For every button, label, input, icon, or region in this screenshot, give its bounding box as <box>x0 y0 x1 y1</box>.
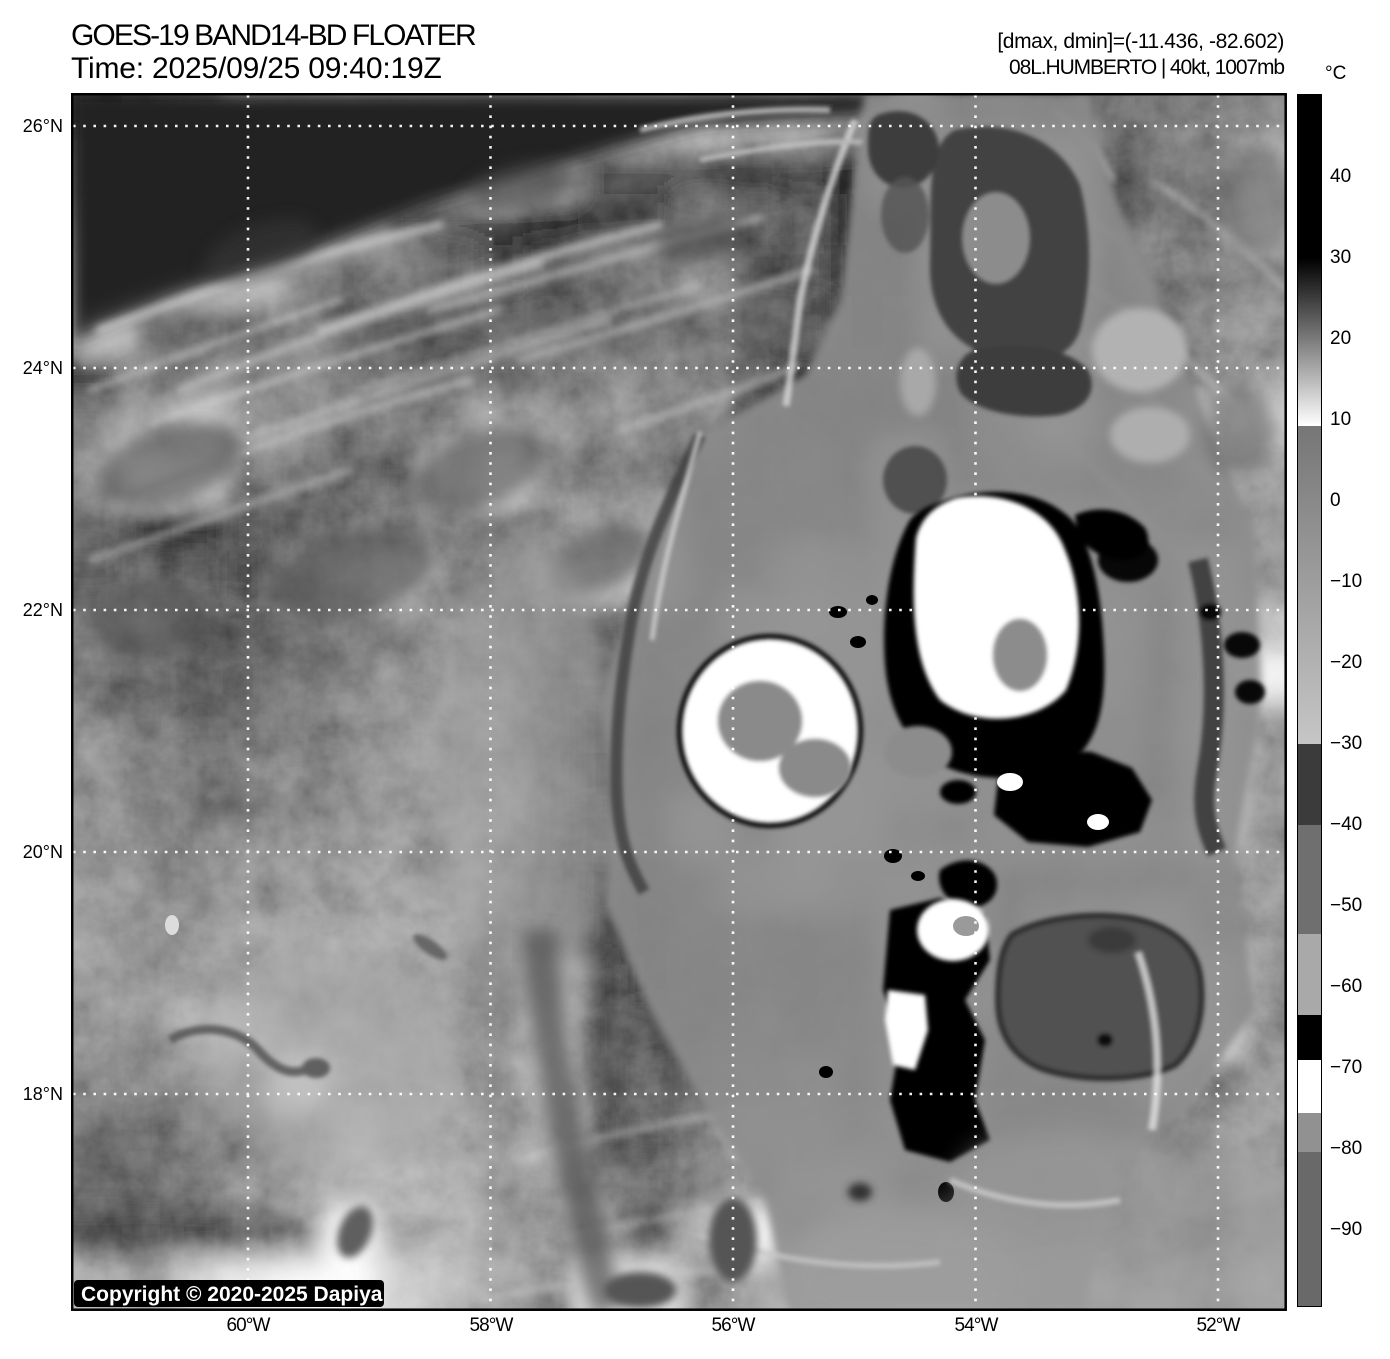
svg-text:Copyright © 2020-2025 Dapiya: Copyright © 2020-2025 Dapiya <box>81 1283 383 1306</box>
